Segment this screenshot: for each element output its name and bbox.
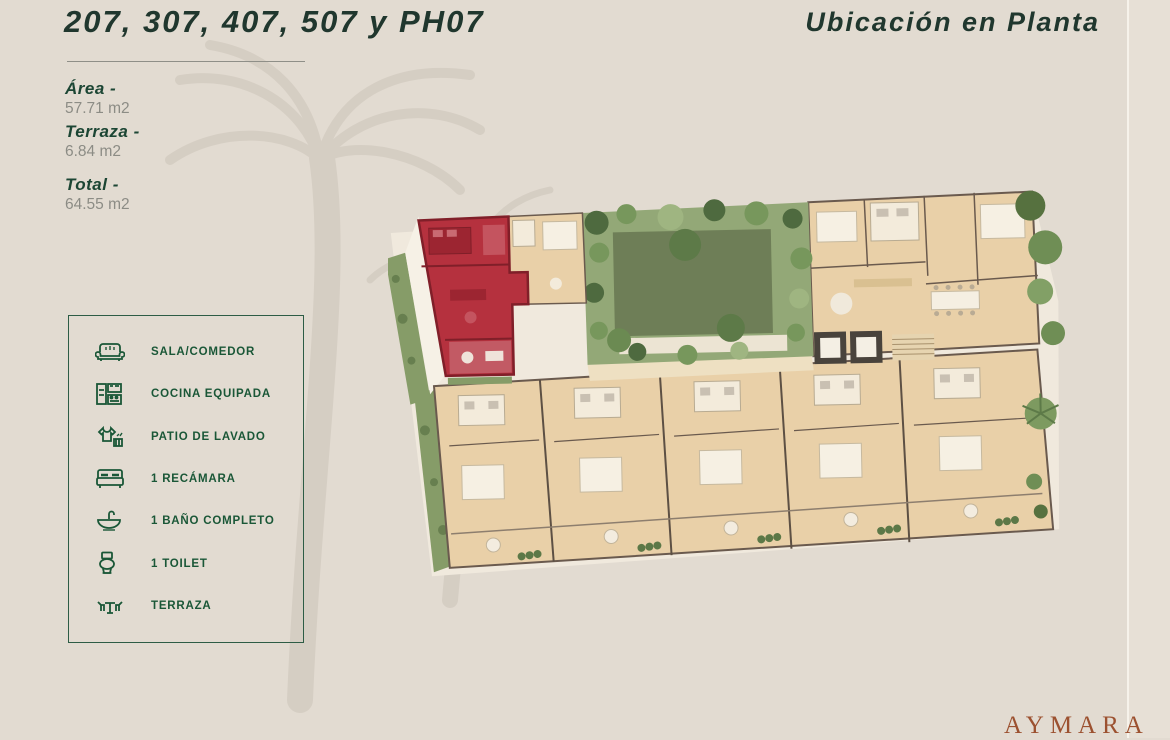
page-title: 207, 307, 407, 507 y PH07	[64, 4, 485, 40]
amenities-legend: SALA/COMEDOR COCINA EQUIPADA PATI	[68, 315, 304, 643]
legend-label: SALA/COMEDOR	[151, 346, 255, 358]
legend-label: TERRAZA	[151, 600, 212, 612]
legend-item-recamara: 1 RECÁMARA	[95, 467, 303, 491]
legend-label: COCINA EQUIPADA	[151, 388, 271, 400]
legend-item-cocina: COCINA EQUIPADA	[95, 382, 303, 406]
sink-icon	[95, 509, 129, 533]
stat-value-terraza: 6.84 m2	[65, 142, 305, 162]
legend-item-toilet: 1 TOILET	[95, 552, 303, 576]
legend-item-patio-lavado: PATIO DE LAVADO	[95, 425, 303, 449]
legend-item-bano: 1 BAÑO COMPLETO	[95, 509, 303, 533]
floorplan-rendering	[388, 188, 1068, 578]
legend-item-sala-comedor: SALA/COMEDOR	[95, 340, 303, 364]
area-stats: Área - 57.71 m2 Terraza - 6.84 m2 Total …	[65, 78, 305, 217]
sofa-icon	[95, 340, 129, 364]
legend-label: PATIO DE LAVADO	[151, 431, 266, 443]
legend-label: 1 TOILET	[151, 558, 208, 570]
brand-logo: AYMARA	[1004, 712, 1124, 740]
bed-icon	[95, 467, 129, 491]
page-edge-panel	[1129, 0, 1170, 738]
stat-value-total: 64.55 m2	[65, 195, 305, 215]
header-rule	[67, 61, 305, 62]
terrace-icon	[95, 594, 129, 618]
laundry-icon	[95, 425, 129, 449]
kitchen-icon	[95, 382, 129, 406]
stat-label-total: Total -	[65, 174, 305, 195]
legend-label: 1 BAÑO COMPLETO	[151, 515, 275, 527]
toilet-icon	[95, 552, 129, 576]
stat-value-area: 57.71 m2	[65, 99, 305, 119]
stat-label-area: Área -	[65, 78, 305, 99]
page-subtitle: Ubicación en Planta	[805, 7, 1100, 38]
legend-label: 1 RECÁMARA	[151, 473, 236, 485]
legend-item-terraza: TERRAZA	[95, 594, 303, 618]
stat-label-terraza: Terraza -	[65, 121, 305, 142]
